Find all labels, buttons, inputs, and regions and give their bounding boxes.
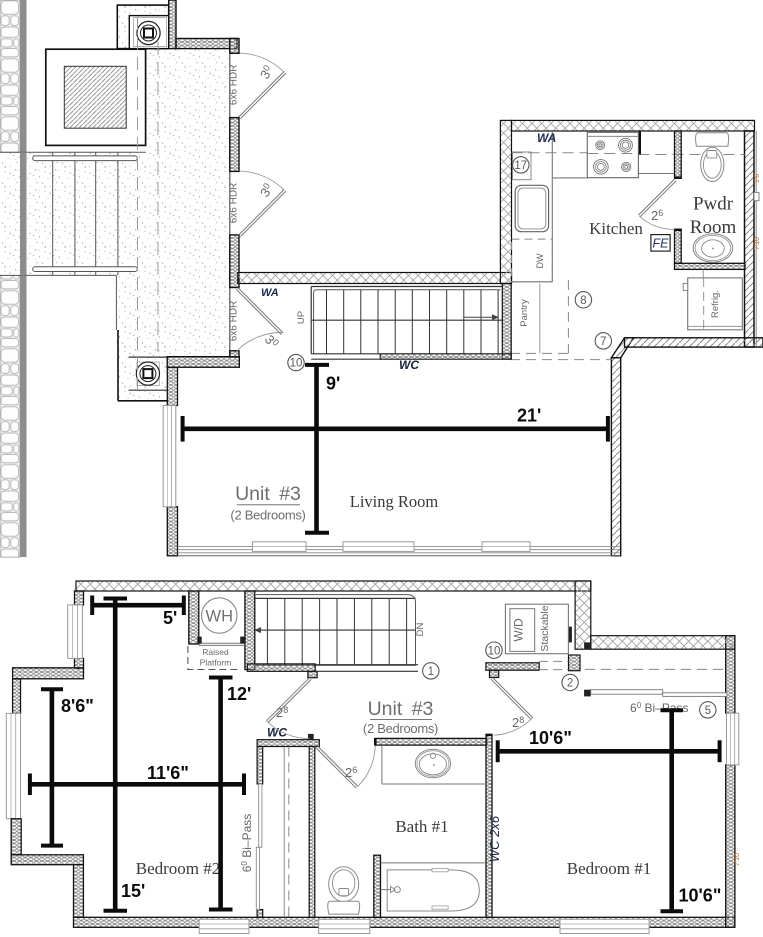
svg-text:Bedroom #1: Bedroom #1 (567, 859, 652, 878)
svg-text:6x6 HDR: 6x6 HDR (229, 301, 240, 342)
svg-text:1: 1 (428, 666, 434, 678)
svg-text:11'6": 11'6" (147, 763, 189, 783)
svg-text:DN: DN (415, 623, 426, 637)
svg-text:Unit #3: Unit #3 (235, 483, 301, 505)
svg-text:1'6: 1'6 (754, 174, 761, 183)
svg-text:5': 5' (163, 608, 177, 628)
svg-text:WC: WC (399, 358, 419, 372)
svg-text:6x6 HDR: 6x6 HDR (229, 183, 240, 224)
svg-text:10'6": 10'6" (679, 886, 722, 906)
svg-text:7'10: 7'10 (734, 853, 741, 866)
svg-text:2: 2 (567, 678, 573, 690)
svg-text:Pwdr: Pwdr (693, 194, 734, 215)
svg-text:Stackable: Stackable (539, 605, 551, 651)
svg-text:WC 2x6: WC 2x6 (487, 815, 502, 862)
svg-text:Bath #1: Bath #1 (395, 817, 448, 836)
svg-text:(2 Bedrooms): (2 Bedrooms) (363, 721, 438, 736)
svg-text:UP: UP (296, 311, 307, 324)
svg-text:5: 5 (705, 705, 711, 717)
svg-text:10'6": 10'6" (529, 728, 572, 748)
svg-text:WC: WC (267, 726, 287, 740)
svg-text:Bedroom #2: Bedroom #2 (136, 859, 221, 878)
svg-text:10: 10 (488, 645, 501, 657)
svg-text:Pantry: Pantry (519, 299, 530, 327)
svg-text:9': 9' (326, 374, 340, 394)
svg-text:6x6 HDR: 6x6 HDR (229, 65, 240, 106)
svg-text:DW: DW (535, 253, 545, 268)
svg-text:Raised: Raised (202, 647, 229, 657)
svg-text:15': 15' (121, 881, 145, 901)
svg-text:17: 17 (514, 160, 527, 172)
svg-text:Kitchen: Kitchen (589, 219, 643, 238)
svg-text:7: 7 (600, 336, 606, 348)
svg-text:Refrig.: Refrig. (710, 290, 721, 318)
svg-text:WA: WA (537, 131, 556, 145)
svg-text:12': 12' (227, 684, 251, 704)
svg-text:Platform: Platform (200, 658, 232, 668)
svg-text:8: 8 (580, 295, 586, 307)
svg-text:WH: WH (206, 608, 234, 626)
svg-text:(2 Bedrooms): (2 Bedrooms) (230, 508, 305, 523)
svg-text:WA: WA (261, 287, 279, 299)
svg-text:8'6": 8'6" (61, 696, 94, 716)
svg-text:7'10: 7'10 (754, 237, 761, 250)
svg-text:Living Room: Living Room (350, 492, 439, 511)
svg-text:Unit #3: Unit #3 (368, 698, 434, 720)
svg-text:W/D: W/D (512, 618, 526, 642)
svg-text:FE: FE (653, 237, 670, 251)
svg-text:21': 21' (517, 406, 541, 426)
svg-text:Room: Room (690, 217, 737, 238)
svg-text:10: 10 (290, 358, 303, 370)
